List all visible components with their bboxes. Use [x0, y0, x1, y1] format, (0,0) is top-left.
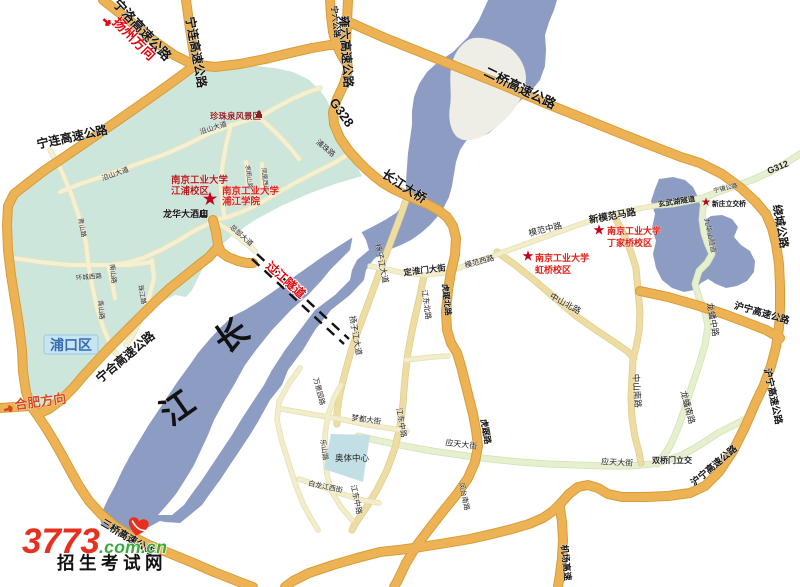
svg-text:浦口区: 浦口区 — [50, 337, 92, 353]
svg-text:南京工业大学: 南京工业大学 — [607, 225, 661, 236]
svg-text:双桥门立交: 双桥门立交 — [652, 455, 692, 465]
svg-text:浦江学院: 浦江学院 — [222, 196, 261, 208]
svg-text:江浦校区: 江浦校区 — [171, 185, 210, 197]
svg-text:珍珠泉风景区: 珍珠泉风景区 — [210, 111, 262, 121]
svg-text:南京工业大学: 南京工业大学 — [222, 185, 280, 197]
svg-text:丁家桥校区: 丁家桥校区 — [607, 237, 652, 248]
svg-text:新庄立交桥: 新庄立交桥 — [712, 199, 746, 208]
svg-text:虹桥校区: 虹桥校区 — [535, 264, 571, 275]
svg-text:南京工业大学: 南京工业大学 — [535, 252, 589, 263]
svg-text:应天大街: 应天大街 — [601, 456, 633, 468]
svg-text:南京工业大学: 南京工业大学 — [171, 174, 229, 186]
svg-text:招生考试网: 招生考试网 — [57, 553, 167, 573]
svg-text:奥体中心: 奥体中心 — [335, 453, 370, 463]
